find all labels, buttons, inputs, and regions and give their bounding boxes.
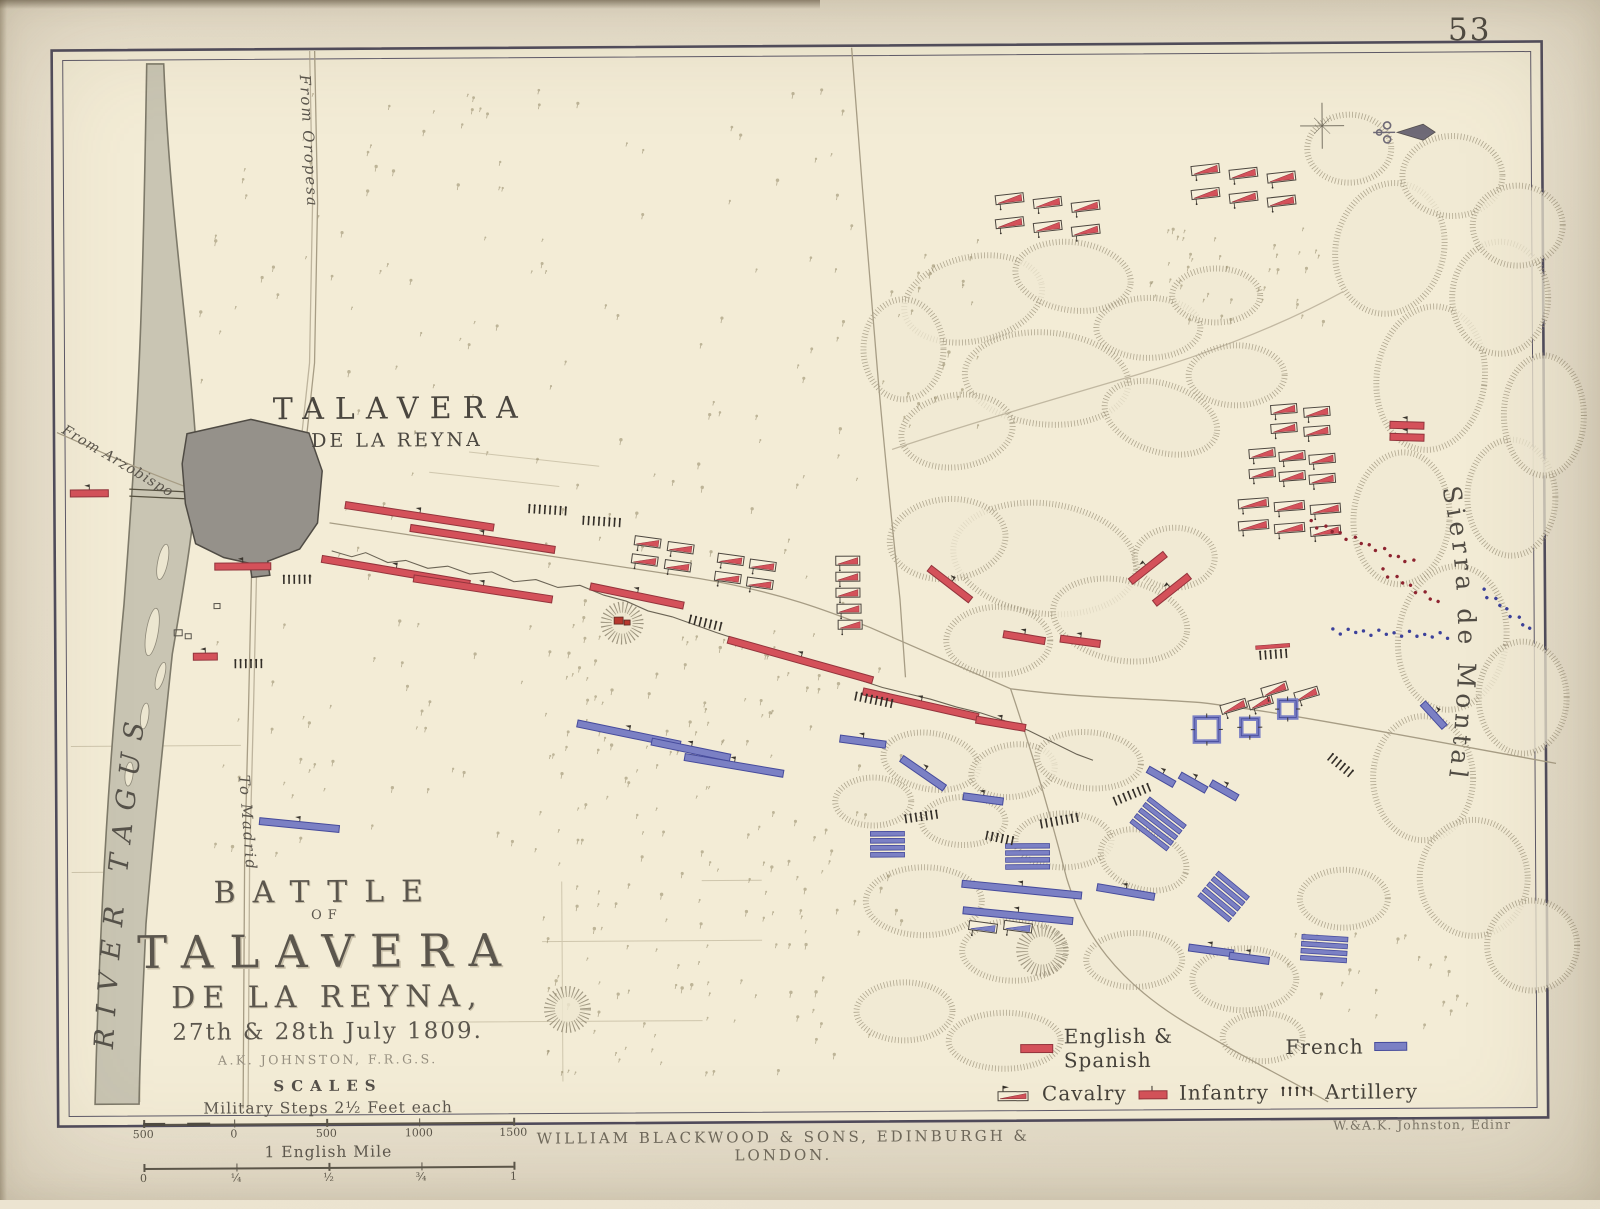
title-line-de-la-reyna: DE LA REYNA, — [128, 979, 526, 1016]
hill-blob — [1478, 641, 1567, 754]
scales-heading: SCALES — [129, 1076, 527, 1096]
legend-english-label: English & Spanish — [1064, 1023, 1237, 1072]
title-line-battle: BATTLE — [128, 874, 526, 911]
scale2-tick-4: 1 — [510, 1170, 517, 1183]
hill-blob — [1307, 114, 1391, 183]
title-line-of: OF — [128, 907, 526, 924]
engraver-credit: W.&A.K. Johnston, Edinr — [1333, 1116, 1573, 1132]
legend-english-swatch-icon — [1020, 1042, 1054, 1054]
scale2-tick-2: ½ — [323, 1171, 334, 1184]
scale2-label: 1 English Mile — [129, 1142, 527, 1162]
hill-blob — [835, 777, 911, 825]
legend-infantry-icon — [1137, 1085, 1169, 1101]
scale1-tick-1: 0 — [230, 1127, 237, 1140]
author-credit: A.K. JOHNSTON, F.R.G.S. — [129, 1051, 527, 1068]
scale2-tick-0: 0 — [140, 1172, 147, 1185]
legend-artillery-label: Artillery — [1325, 1079, 1418, 1104]
hill-blob — [1135, 527, 1215, 587]
hill-blob — [1487, 900, 1578, 991]
town-label-2: DE LA REYNA — [311, 429, 483, 452]
unit-sq-french — [1237, 715, 1262, 740]
hill-blob — [1188, 345, 1284, 406]
scale1-tick-0: 500 — [133, 1128, 154, 1141]
hill-blob — [1472, 185, 1562, 266]
map-photo: TALAVERA DE LA REYNA RIVER TAGUS Sierra … — [0, 0, 1600, 1205]
hill-blob — [856, 982, 952, 1041]
unit-sq-french — [1191, 713, 1223, 745]
title-line-talavera: TALAVERA — [128, 924, 526, 979]
unit-sq-french — [1275, 696, 1300, 721]
town-label-1: TALAVERA — [273, 391, 529, 428]
scale-bar-mile: 0 ¼ ½ ¾ 1 — [143, 1162, 513, 1186]
legend-infantry-label: Infantry — [1179, 1080, 1269, 1105]
legend-cavalry-icon — [996, 1085, 1032, 1103]
legend-cavalry-label: Cavalry — [1042, 1081, 1127, 1106]
title-line-date: 27th & 28th July 1809. — [129, 1018, 527, 1046]
legend-artillery-icon — [1279, 1085, 1315, 1099]
chapel-building — [614, 617, 623, 624]
scale1-tick-2: 500 — [316, 1127, 337, 1140]
hill-blob — [1300, 869, 1388, 928]
hill-blob — [1504, 355, 1585, 475]
publisher-imprint: WILLIAM BLACKWOOD & SONS, EDINBURGH & LO… — [498, 1126, 1068, 1165]
scale1-tick-3: 1000 — [405, 1126, 433, 1139]
map-legend: English & Spanish French Cavalry Infantr… — [978, 1022, 1418, 1106]
title-cartouche: BATTLE OF TALAVERA DE LA REYNA, 27th & 2… — [128, 874, 528, 1186]
legend-french-label: French — [1285, 1035, 1363, 1059]
scale2-tick-3: ¾ — [416, 1170, 427, 1183]
page-number: 53 — [1448, 12, 1491, 48]
hill-blob — [1172, 268, 1260, 323]
scale2-tick-1: ¼ — [231, 1171, 242, 1184]
scale1-label: Military Steps 2½ Feet each — [129, 1098, 527, 1118]
legend-french-swatch-icon — [1374, 1040, 1408, 1052]
scale-bar-steps: 500 0 500 1000 1500 — [143, 1118, 513, 1142]
